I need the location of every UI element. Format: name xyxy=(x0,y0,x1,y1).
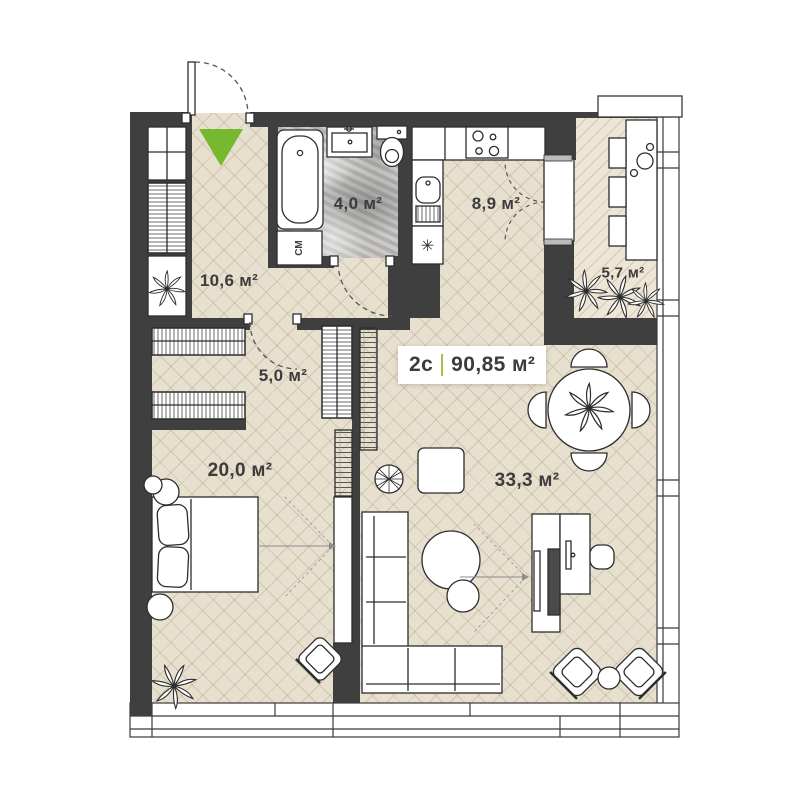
bar-stool xyxy=(609,177,626,207)
bathroom-door-arc xyxy=(338,262,392,316)
dining-chair xyxy=(528,392,546,428)
tv-console-bedroom xyxy=(334,497,352,643)
entrance-door xyxy=(182,62,254,123)
balcony-ledge xyxy=(598,96,682,117)
living-furniture xyxy=(362,349,666,699)
entrance-swing-arc xyxy=(195,62,248,115)
window-band-right xyxy=(657,117,679,705)
desk xyxy=(560,514,590,594)
nightstand xyxy=(144,476,162,494)
rattan-pouf xyxy=(375,465,403,493)
plan-type-label: 2с xyxy=(409,353,433,377)
kitchen-sink xyxy=(416,177,440,222)
room-label-bedroom: 20,0 м² xyxy=(208,460,273,482)
toilet xyxy=(377,126,407,167)
washing-machine: СМ xyxy=(277,231,322,265)
wardrobe xyxy=(152,328,245,355)
bookshelf xyxy=(335,430,352,496)
plan-title: 2с 90,85 м² xyxy=(398,346,546,384)
window-band-bottom xyxy=(130,703,679,737)
room-label-kitchen: 8,9 м² xyxy=(472,194,520,214)
bar-stool xyxy=(609,216,626,246)
bedroom-furniture xyxy=(144,476,352,683)
stove xyxy=(466,127,508,158)
dining-chair xyxy=(632,392,650,428)
bathroom-sink xyxy=(327,127,372,157)
entrance-door-leaf xyxy=(188,62,195,115)
bar-counter xyxy=(626,120,657,260)
plan-area-label: 90,85 м² xyxy=(451,353,535,377)
fridge: ✳ xyxy=(412,226,443,264)
room-label-living: 33,3 м² xyxy=(495,470,560,492)
furniture-layer: СМ xyxy=(0,0,800,800)
room-label-closet: 5,0 м² xyxy=(259,366,307,386)
tv-console-living xyxy=(532,514,560,632)
dining-chair xyxy=(571,349,607,367)
wardrobe xyxy=(322,326,352,418)
bed xyxy=(152,497,258,592)
bathtub xyxy=(277,130,323,229)
hall-wardrobe xyxy=(148,183,186,253)
room-label-hallway: 10,6 м² xyxy=(200,271,258,291)
pillow xyxy=(157,546,189,588)
entrance-marker-triangle xyxy=(199,129,243,166)
dining-chair xyxy=(571,453,607,471)
pillow xyxy=(157,504,190,546)
shoe-cabinet xyxy=(148,127,186,180)
floor-plan-canvas: СМ xyxy=(0,0,800,800)
balcony-furniture xyxy=(609,120,657,260)
coffee-table xyxy=(447,580,479,612)
bedroom-view-lines xyxy=(258,496,336,598)
desk-chair xyxy=(590,545,614,569)
wardrobe xyxy=(152,392,245,419)
desk-monitor xyxy=(566,541,571,569)
closet-door-arc xyxy=(250,322,297,369)
room-label-balcony: 5,7 м² xyxy=(602,265,645,282)
tv-living xyxy=(534,551,540,611)
bar-stool xyxy=(609,138,626,168)
armchair xyxy=(550,645,604,699)
title-divider xyxy=(441,354,443,376)
fridge-symbol: ✳ xyxy=(421,238,434,255)
side-table xyxy=(598,667,620,689)
nightstand xyxy=(147,594,173,620)
room-label-bathroom: 4,0 м² xyxy=(334,194,382,214)
bookshelf xyxy=(360,328,377,450)
washing-machine-label: СМ xyxy=(294,240,305,255)
coffee-table xyxy=(422,531,480,589)
pouf xyxy=(418,448,464,493)
